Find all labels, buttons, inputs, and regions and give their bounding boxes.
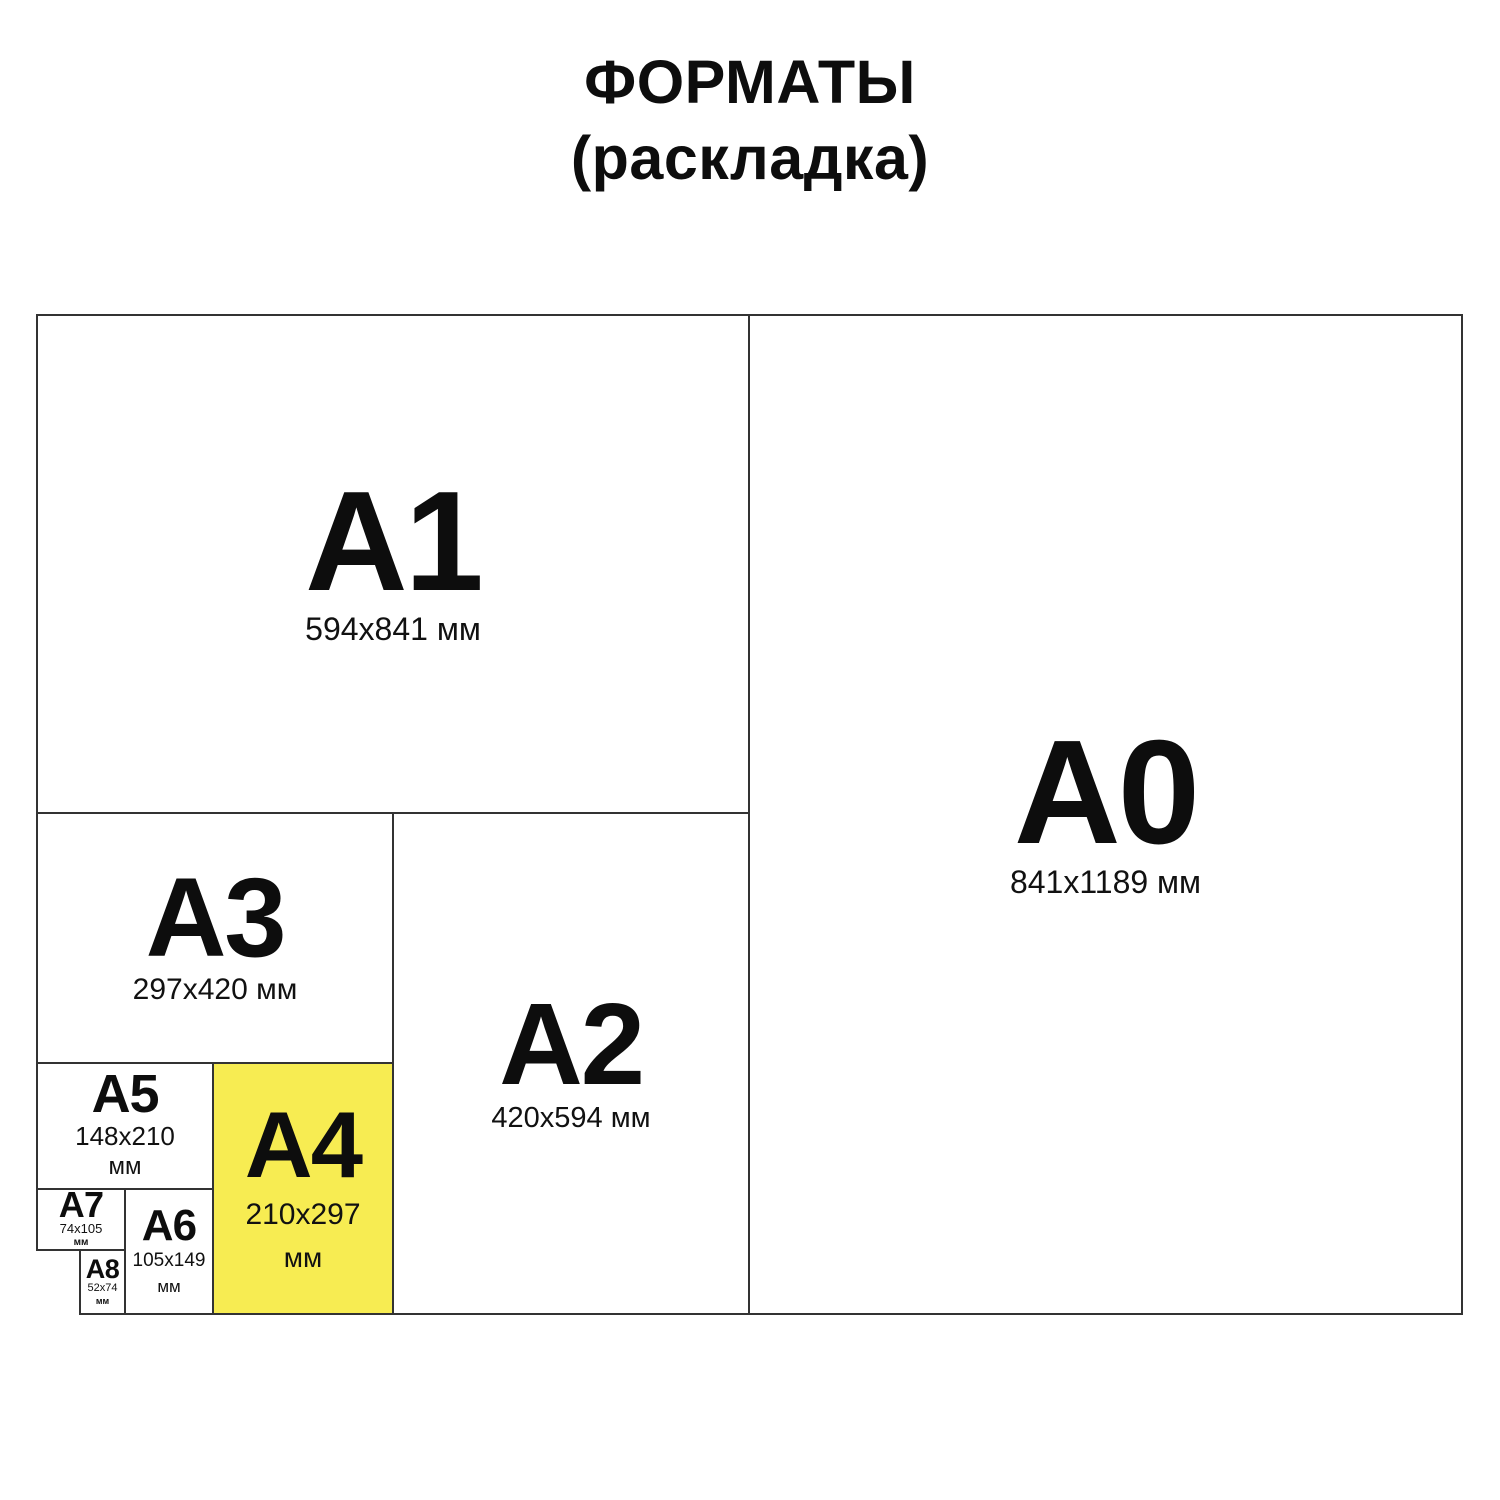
format-box-a3: A3 297x420 мм [36, 812, 394, 1064]
page-title-line1: ФОРМАТЫ [0, 44, 1500, 120]
format-dimensions-unit: мм [74, 1237, 89, 1248]
format-box-a2: A2 420x594 мм [392, 812, 750, 1315]
format-dimensions-unit: мм [109, 1154, 142, 1181]
format-dimensions: 420x594 мм [491, 1102, 650, 1134]
format-letter: A0 [1014, 728, 1197, 858]
format-dimensions: 210x297 [245, 1198, 360, 1232]
format-dimensions-unit: мм [284, 1242, 323, 1273]
format-letter: A4 [245, 1104, 361, 1187]
format-dimensions: 148x210 [75, 1122, 175, 1151]
format-letter: A7 [59, 1190, 104, 1221]
format-box-a8: A8 52x74 мм [79, 1249, 126, 1315]
format-box-a5: A5 148x210 мм [36, 1062, 214, 1190]
format-box-a7: A7 74x105 мм [36, 1188, 126, 1251]
format-box-a0: A0 841x1189 мм [748, 314, 1463, 1315]
format-letter: A3 [146, 869, 285, 968]
format-box-a6: A6 105x149 мм [124, 1188, 214, 1315]
format-dimensions: 105x149 [133, 1250, 206, 1271]
format-letter: A6 [142, 1207, 197, 1246]
format-box-a1: A1 594x841 мм [36, 314, 750, 814]
format-dimensions: 841x1189 мм [1010, 865, 1201, 901]
page-title-line2: (раскладка) [0, 120, 1500, 196]
format-box-a4: A4 210x297 мм [212, 1062, 394, 1315]
format-dimensions-unit: мм [157, 1277, 180, 1296]
page-title: ФОРМАТЫ (раскладка) [0, 44, 1500, 196]
format-letter: A5 [92, 1071, 159, 1119]
format-letter: A2 [499, 993, 643, 1095]
format-dimensions: 594x841 мм [305, 612, 481, 648]
format-dimensions-unit: мм [96, 1296, 109, 1306]
format-letter: A8 [86, 1258, 119, 1281]
format-dimensions: 52x74 [88, 1282, 118, 1294]
format-letter: A1 [305, 480, 481, 605]
format-dimensions: 297x420 мм [133, 973, 298, 1007]
format-dimensions: 74x105 [60, 1222, 103, 1237]
